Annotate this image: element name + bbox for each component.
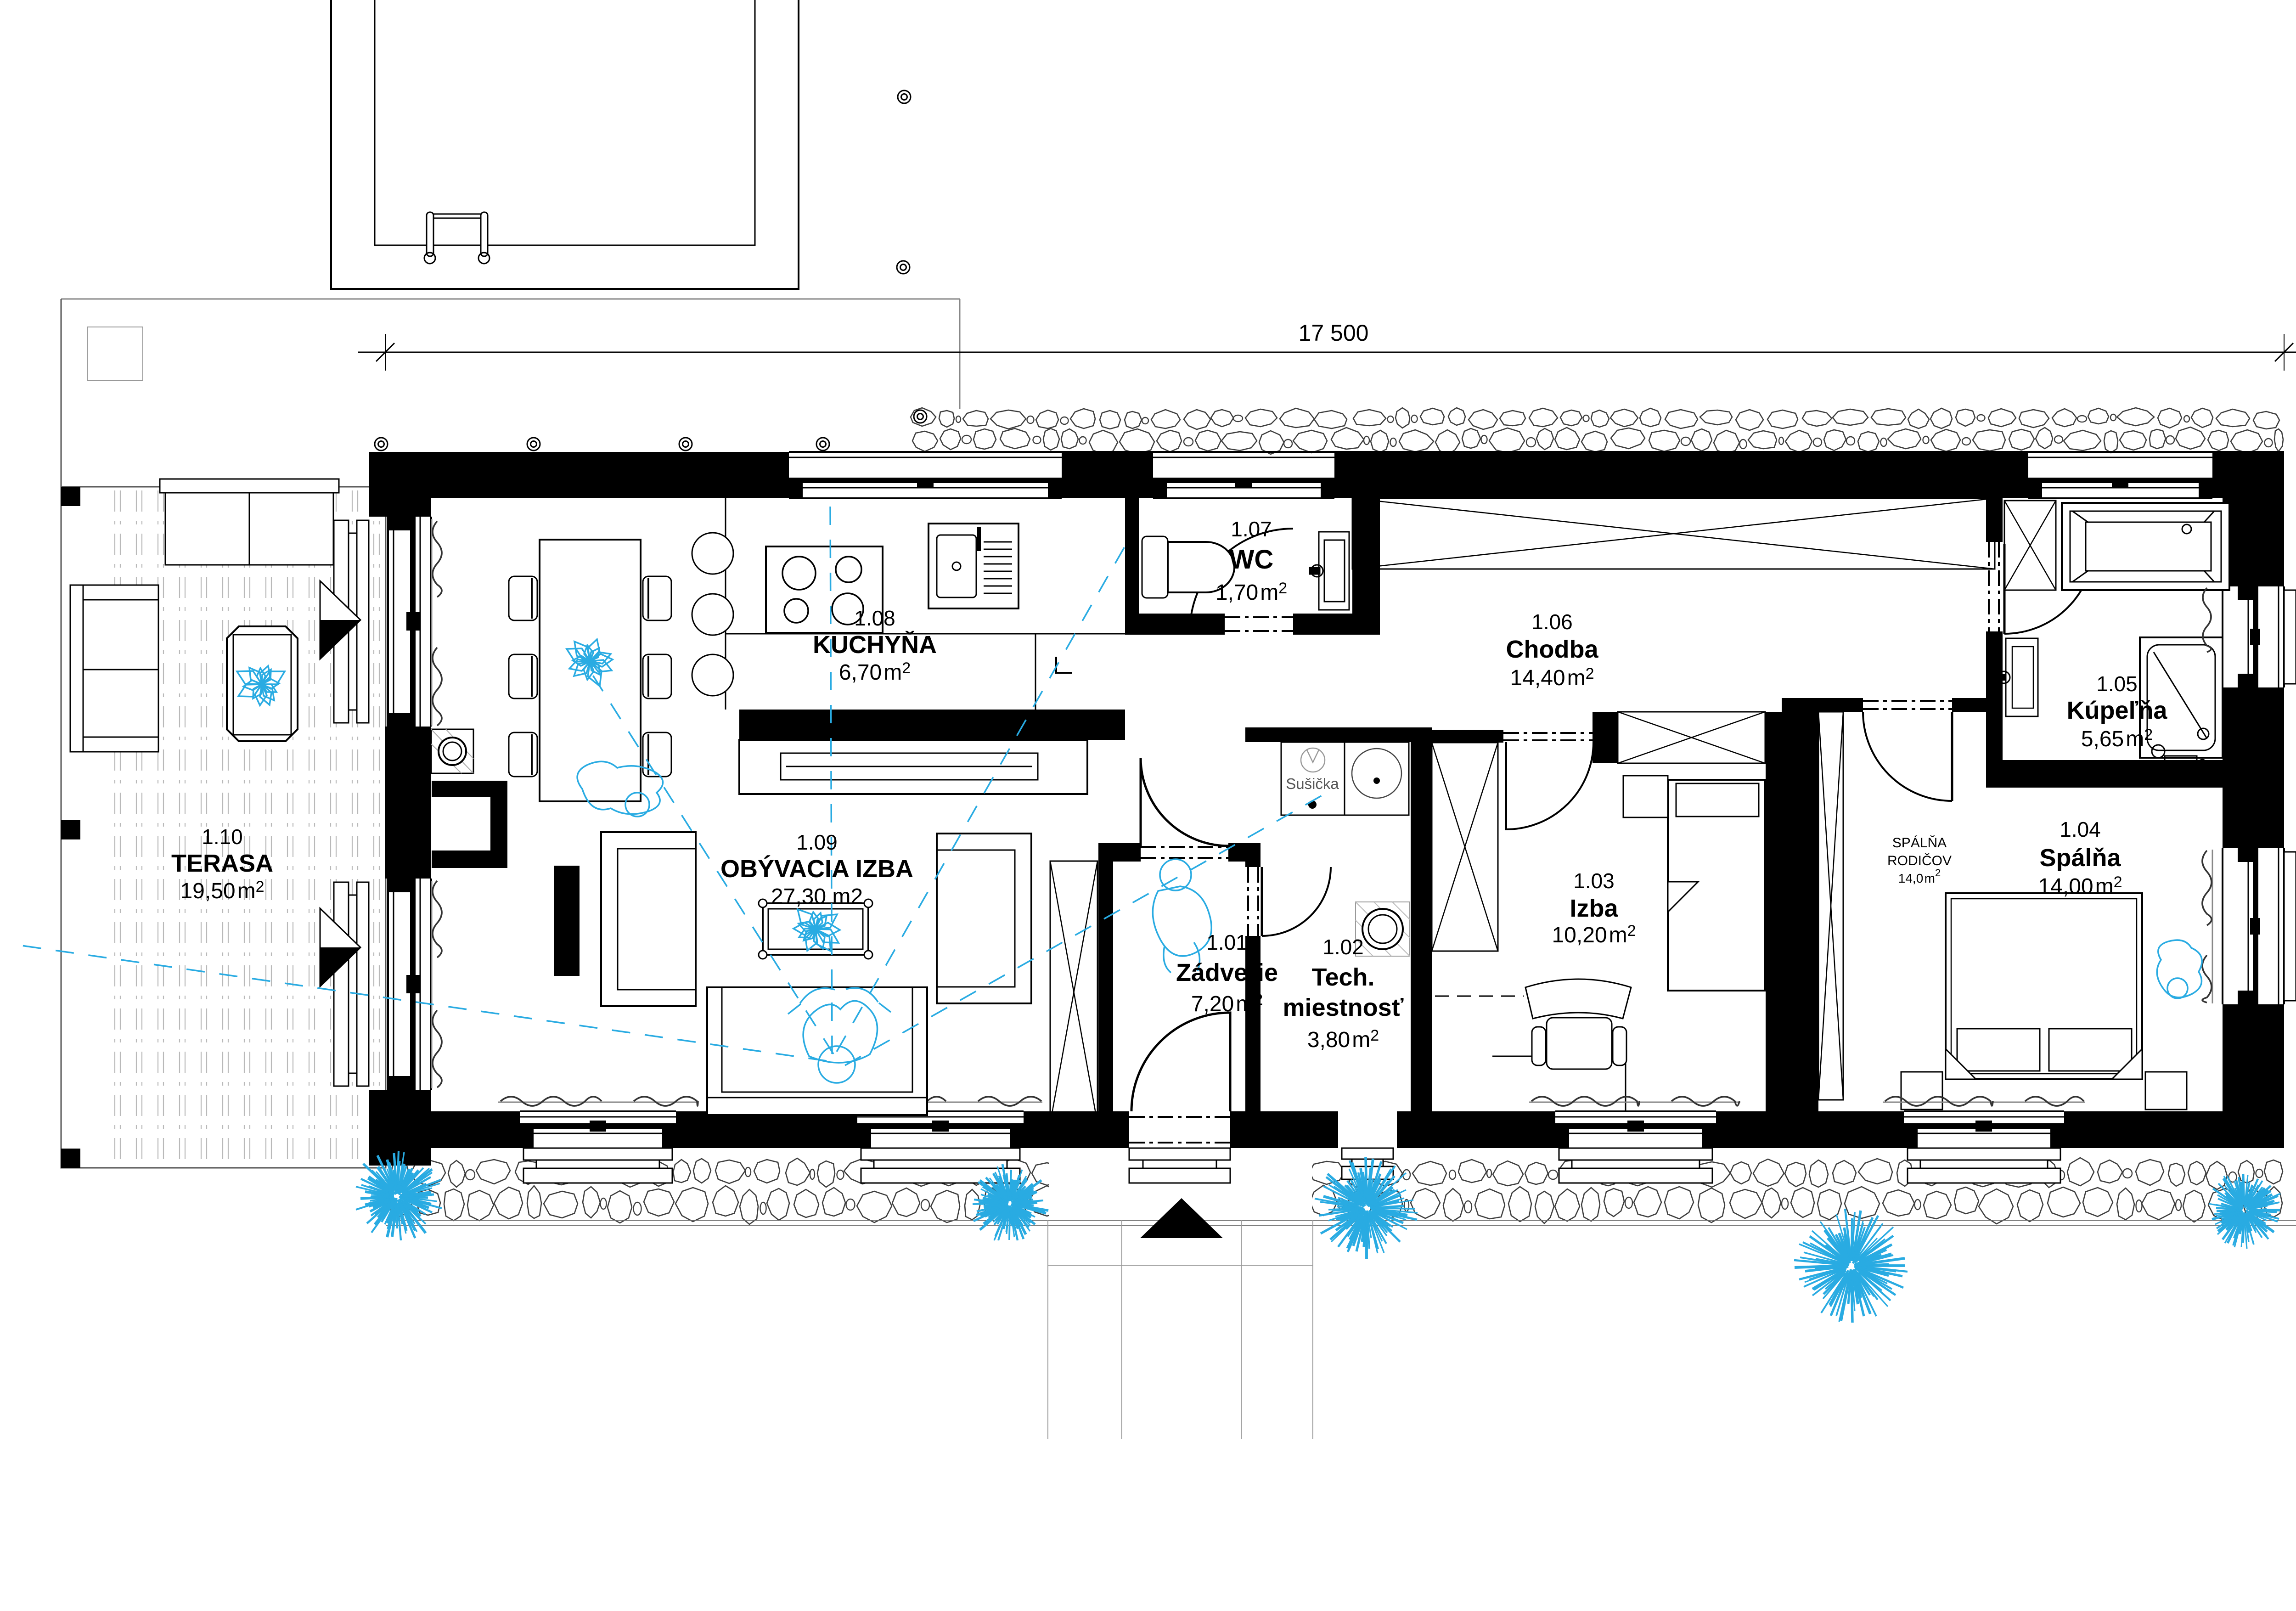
svg-text:17 500: 17 500 bbox=[1299, 320, 1369, 346]
svg-text:OBÝVACIA IZBA: OBÝVACIA IZBA bbox=[720, 855, 913, 883]
svg-text:Tech.: Tech. bbox=[1311, 963, 1374, 991]
svg-text:10,20 m2: 10,20 m2 bbox=[1552, 922, 1636, 947]
svg-text:Sušička: Sušička bbox=[1286, 775, 1339, 792]
svg-text:RODIČOV: RODIČOV bbox=[1887, 853, 1952, 868]
svg-text:1.07: 1.07 bbox=[1231, 517, 1272, 541]
svg-text:1.09: 1.09 bbox=[796, 830, 838, 854]
svg-text:Kúpeľňa: Kúpeľňa bbox=[2067, 697, 2168, 724]
svg-text:KUCHYŇA: KUCHYŇA bbox=[813, 631, 937, 659]
svg-text:14,40 m2: 14,40 m2 bbox=[1510, 665, 1594, 690]
svg-text:1.03: 1.03 bbox=[1573, 869, 1615, 893]
svg-text:1.10: 1.10 bbox=[202, 825, 243, 849]
svg-text:1.02: 1.02 bbox=[1322, 935, 1364, 959]
svg-text:Izba: Izba bbox=[1570, 895, 1618, 922]
svg-text:Zádverie: Zádverie bbox=[1176, 959, 1278, 986]
svg-text:14,00 m2: 14,00 m2 bbox=[2038, 873, 2122, 899]
svg-text:5,65 m2: 5,65 m2 bbox=[2081, 726, 2153, 751]
svg-text:1.08: 1.08 bbox=[854, 606, 895, 630]
svg-text:1.04: 1.04 bbox=[2060, 817, 2101, 841]
svg-text:1.05: 1.05 bbox=[2096, 672, 2138, 696]
svg-text:27,30 m2: 27,30 m2 bbox=[771, 884, 863, 909]
svg-text:19,50 m2: 19,50 m2 bbox=[180, 878, 264, 903]
svg-text:TERASA: TERASA bbox=[171, 850, 273, 877]
svg-text:14,0 m2: 14,0 m2 bbox=[1898, 867, 1941, 885]
svg-text:WC: WC bbox=[1229, 545, 1274, 575]
svg-text:3,80 m2: 3,80 m2 bbox=[1307, 1027, 1379, 1052]
svg-text:SPÁLŇA: SPÁLŇA bbox=[1892, 835, 1947, 851]
svg-text:miestnosť: miestnosť bbox=[1283, 994, 1404, 1021]
svg-text:1,70 m2: 1,70 m2 bbox=[1216, 580, 1287, 605]
svg-text:Chodba: Chodba bbox=[1506, 636, 1599, 663]
svg-text:Spálňa: Spálňa bbox=[2039, 844, 2121, 872]
svg-text:1.01: 1.01 bbox=[1206, 930, 1248, 954]
svg-text:1.06: 1.06 bbox=[1531, 610, 1573, 634]
svg-text:7,20 m2: 7,20 m2 bbox=[1191, 991, 1263, 1016]
svg-text:6,70 m2: 6,70 m2 bbox=[839, 659, 911, 685]
